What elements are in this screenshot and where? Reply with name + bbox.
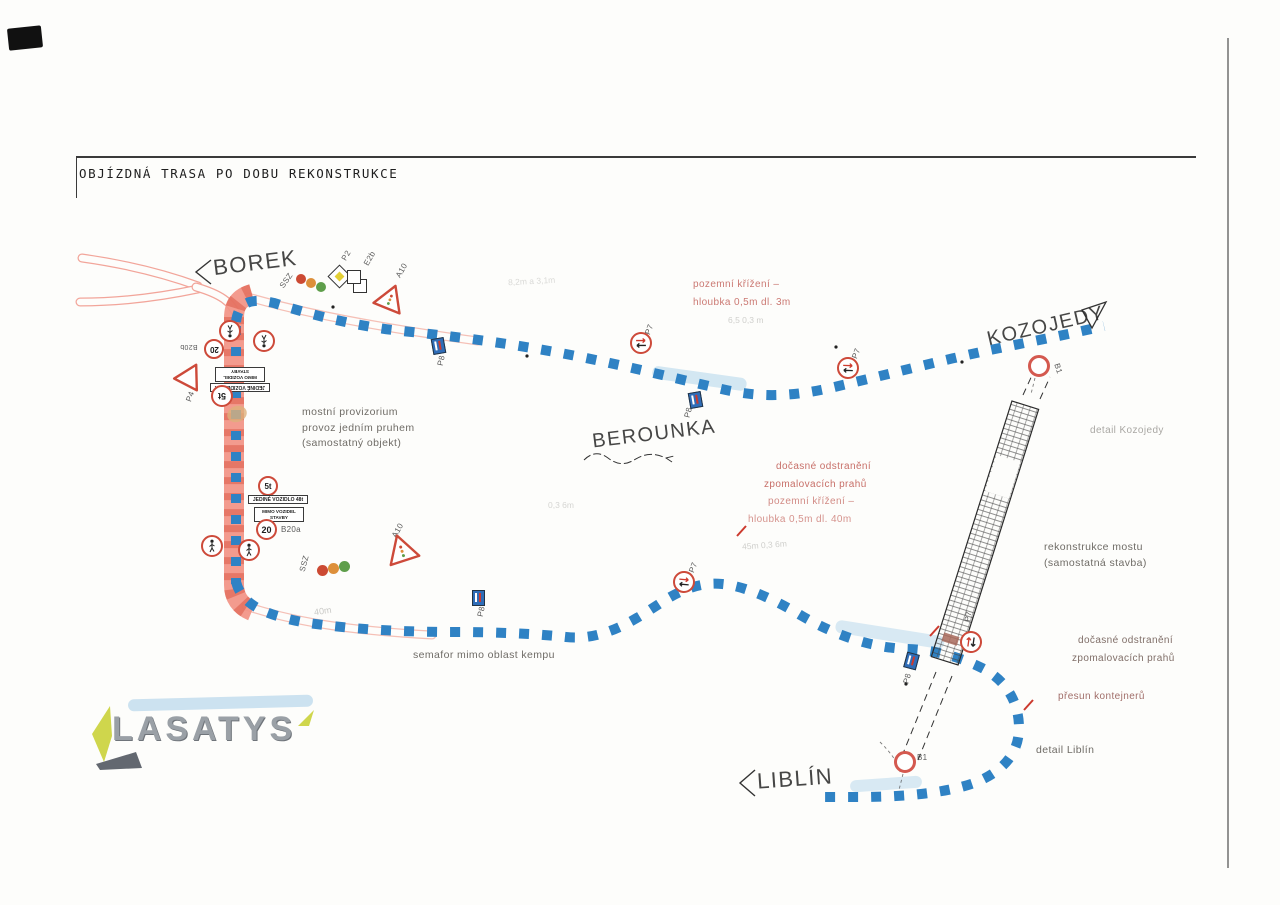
plate-line: STAVBY (216, 369, 264, 375)
place-label-liblin: LIBLÍN (756, 763, 834, 794)
logo-base-shape-icon (96, 750, 142, 770)
scan-page-edge-line (1227, 38, 1229, 868)
rednote-line: dočasné odstranění (776, 458, 871, 476)
rednote-line: hloubka 0,5m dl. 3m (693, 294, 791, 312)
p7-oncoming-priority-sign-icon (837, 357, 860, 380)
plate-line: JEDINÉ VOZIDLO 48t (249, 497, 307, 503)
traffic-light-red-icon (317, 565, 328, 576)
note-detail-kozojedy: detail Kozojedy (1090, 423, 1164, 439)
note-red-right: dočasné odstranění zpomalovacích prahů (1072, 632, 1175, 667)
p7-label: P7 (963, 611, 974, 623)
pedestrian-sign-icon (253, 330, 275, 352)
scan-corner-mark (7, 25, 43, 50)
speed-limit-sign-icon: 20 (256, 519, 277, 540)
no-entry-sign-icon (1028, 355, 1050, 377)
p8-sign-icon (472, 590, 485, 606)
traffic-light-orange-icon (328, 563, 339, 574)
note-line: mostní provizorium (302, 405, 414, 421)
logo-wordmark: LASATYS (112, 710, 296, 749)
note-red-top: pozemní křížení – hloubka 0,5m dl. 3m (693, 276, 791, 311)
traffic-light-green-icon (316, 282, 326, 292)
note-detail-liblin: detail Liblín (1036, 743, 1094, 759)
rednote-line: zpomalovacích prahů (764, 476, 871, 494)
river-flow-arrow-icon (582, 448, 687, 468)
pedestrian-sign-icon (219, 320, 241, 342)
b20b-label: B20b (180, 343, 198, 350)
speed-limit-sign-icon: 20 (204, 339, 224, 359)
rednote-line: dočasné odstranění (1078, 632, 1175, 650)
traffic-light-green-icon (339, 561, 350, 572)
b20a-label: B20a (281, 525, 301, 534)
note-red-mid: dočasné odstranění zpomalovacích prahů p… (748, 458, 871, 528)
traffic-light-red-icon (296, 274, 306, 284)
jedine-vozidlo-plate: JEDINÉ VOZIDLO 48t (248, 495, 308, 504)
drawing-frame-left-tick (76, 156, 77, 198)
p8-sign-icon (688, 391, 704, 409)
rednote-line: zpomalovacích prahů (1072, 650, 1175, 668)
mimo-vozidel-stavby-plate: MIMO VOZIDEL STAVBY (215, 367, 265, 382)
note-line: rekonstrukce mostu (1044, 540, 1147, 556)
note-line: provoz jedním pruhem (302, 421, 414, 437)
rednote-line: pozemní křížení – (693, 276, 791, 294)
note-line: (samostatná stavba) (1044, 556, 1147, 572)
pedestrian-sign-icon (238, 539, 260, 561)
e2b-panel-sign-icon (347, 270, 361, 284)
weight-limit-sign-icon: 5t (211, 385, 233, 407)
pedestrian-sign-icon (201, 535, 223, 557)
measurement-note: 0,3 6m (548, 500, 574, 510)
weight-limit-value: 5t (264, 482, 271, 491)
rednote-line: hloubka 0,5m dl. 40m (748, 511, 871, 529)
rednote-line: pozemní křížení – (768, 493, 871, 511)
b1-label: B1 (917, 753, 927, 762)
scanned-detour-map: OBJÍZDNÁ TRASA PO DOBU REKONSTRUKCE (0, 0, 1280, 905)
note-line: (samostatný objekt) (302, 436, 414, 452)
no-entry-sign-icon (894, 751, 916, 773)
note-bridge-provisional: mostní provizorium provoz jedním pruhem … (302, 405, 414, 452)
note-rekonstrukce: rekonstrukce mostu (samostatná stavba) (1044, 540, 1147, 571)
weight-limit-value: 5t (218, 391, 226, 401)
plate-line: MIMO VOZIDEL (216, 375, 264, 381)
traffic-light-orange-icon (306, 278, 316, 288)
note-presun-kontejneru: přesun kontejnerů (1058, 688, 1145, 706)
logo-leaf-right-icon (298, 710, 316, 726)
drawing-frame-top-line (76, 156, 1196, 158)
p8-sign-icon (431, 337, 447, 355)
speed-limit-value: 20 (261, 525, 271, 535)
weight-limit-sign-icon: 5t (258, 476, 278, 496)
measurement-note: 6,5 0,3 m (728, 315, 763, 325)
speed-limit-value: 20 (210, 345, 219, 354)
note-semafor: semafor mimo oblast kempu (413, 648, 555, 664)
page-title: OBJÍZDNÁ TRASA PO DOBU REKONSTRUKCE (79, 166, 398, 181)
